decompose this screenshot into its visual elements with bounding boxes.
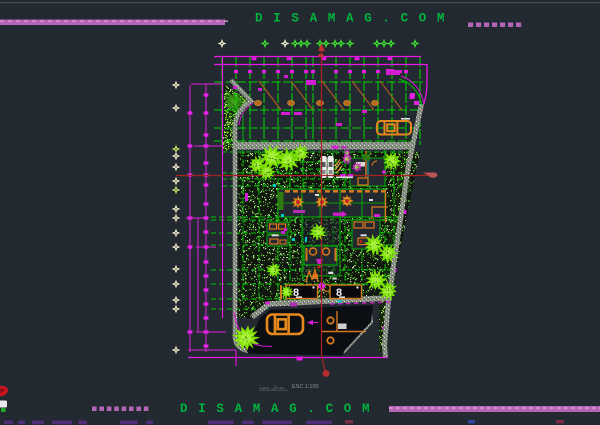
svg-text:ESC 1:100: ESC 1:100: [292, 384, 319, 390]
svg-text:DISAMAG.COM: DISAMAG.COM: [180, 402, 380, 416]
svg-text:DISAMAG.COM: DISAMAG.COM: [255, 12, 455, 26]
